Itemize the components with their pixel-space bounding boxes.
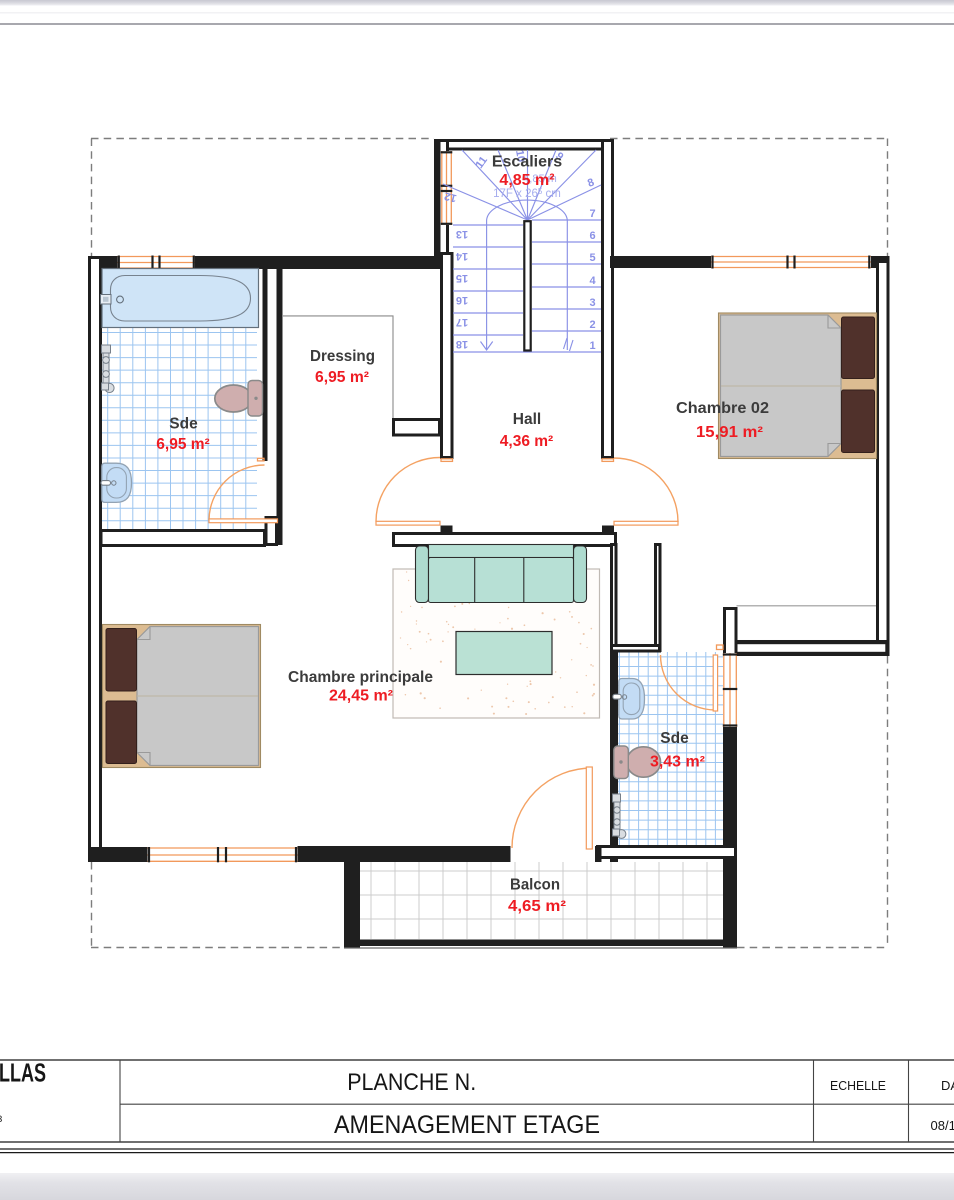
svg-text:1: 1 — [589, 340, 595, 352]
svg-text:ECHELLE: ECHELLE — [830, 1078, 886, 1093]
svg-text:6,95 m²: 6,95 m² — [315, 369, 369, 386]
svg-text:PLANCHE N.: PLANCHE N. — [347, 1069, 476, 1096]
svg-text:17: 17 — [456, 316, 468, 328]
svg-text:LLAS: LLAS — [0, 1060, 46, 1088]
svg-text:4,65 m²: 4,65 m² — [508, 898, 566, 915]
svg-text:Chambre principale: Chambre principale — [288, 669, 433, 686]
svg-text:Sde: Sde — [169, 416, 198, 433]
svg-text:Balcon: Balcon — [510, 877, 560, 894]
svg-text:Escaliers: Escaliers — [492, 154, 562, 171]
svg-text:6,95 m²: 6,95 m² — [156, 436, 209, 453]
svg-text:3: 3 — [0, 1114, 2, 1125]
svg-text:18: 18 — [456, 338, 468, 350]
svg-text:AMENAGEMENT ETAGE: AMENAGEMENT ETAGE — [334, 1111, 600, 1139]
svg-text:DATE: DATE — [941, 1078, 954, 1093]
svg-text:Dressing: Dressing — [310, 348, 375, 365]
svg-text:24,45 m²: 24,45 m² — [329, 688, 393, 705]
svg-text:6: 6 — [589, 230, 595, 242]
svg-text:Hall: Hall — [513, 411, 541, 428]
svg-text:7: 7 — [589, 208, 595, 220]
svg-text:15,91 m²: 15,91 m² — [696, 424, 763, 441]
svg-text:3: 3 — [589, 297, 595, 309]
svg-text:2: 2 — [589, 319, 595, 331]
svg-text:15: 15 — [456, 272, 468, 284]
svg-text:14: 14 — [455, 250, 468, 262]
svg-text:Chambre 02: Chambre 02 — [676, 400, 769, 417]
svg-text:13: 13 — [456, 228, 468, 240]
svg-text:5: 5 — [589, 252, 595, 264]
svg-text:Sde: Sde — [660, 730, 689, 747]
svg-text:4,36 m²: 4,36 m² — [500, 433, 553, 450]
svg-text:4,85 m²: 4,85 m² — [499, 172, 554, 189]
svg-text:4: 4 — [589, 275, 596, 287]
svg-text:16: 16 — [456, 294, 468, 306]
svg-text:3,43 m²: 3,43 m² — [650, 754, 705, 771]
svg-text:08/10/2: 08/10/2 — [931, 1118, 954, 1133]
